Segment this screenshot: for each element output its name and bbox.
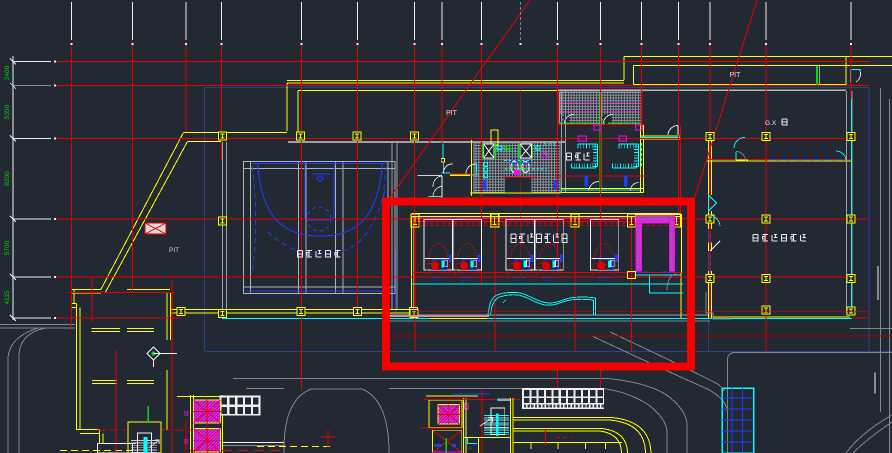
svg-text:B: B (184, 411, 189, 418)
svg-text:G.X: G.X (765, 120, 777, 127)
svg-text:PIT: PIT (730, 72, 742, 79)
svg-text:2400: 2400 (4, 65, 11, 80)
svg-text:B: B (184, 439, 189, 446)
svg-text:5350: 5350 (4, 104, 11, 119)
svg-text:5700: 5700 (4, 240, 11, 255)
svg-text:4115: 4115 (4, 290, 11, 304)
svg-text:PIT: PIT (169, 247, 179, 254)
svg-text:8200: 8200 (4, 171, 11, 186)
svg-text:PIT: PIT (446, 110, 458, 117)
